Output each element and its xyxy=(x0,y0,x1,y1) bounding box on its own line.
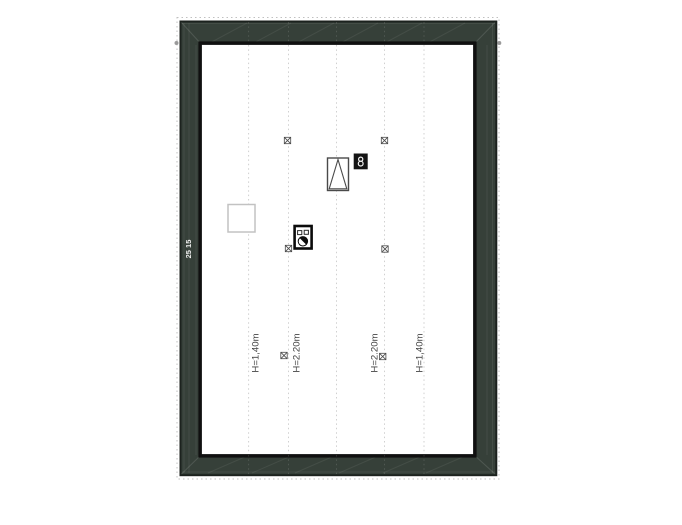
svg-text:H=2.20m: H=2.20m xyxy=(292,333,303,372)
svg-text:25 15: 25 15 xyxy=(184,240,193,259)
svg-text:H=1,40m: H=1,40m xyxy=(251,333,262,372)
svg-text:H=2.20m: H=2.20m xyxy=(370,333,381,372)
svg-text:H=1,40m: H=1,40m xyxy=(414,333,425,372)
